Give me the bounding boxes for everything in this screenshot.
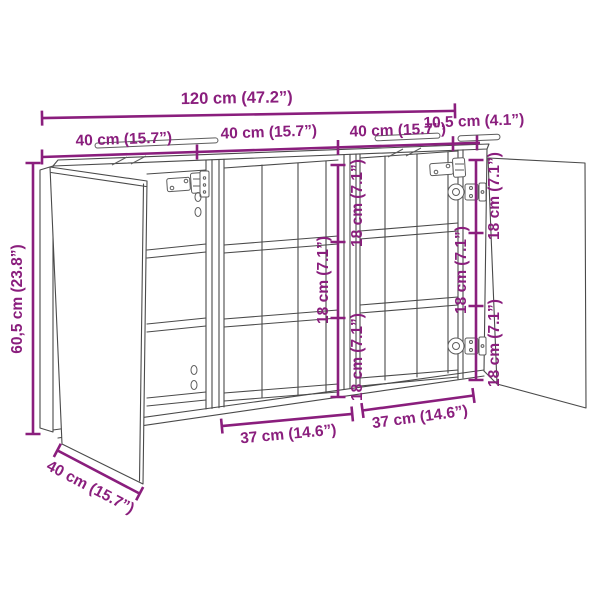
- dim-top-overhang-label: 10,5 cm (4.1”): [423, 111, 524, 132]
- mounting-bracket-left: [167, 171, 209, 197]
- middle-compartment-top: [224, 160, 338, 168]
- dim-section-left-label: 40 cm (15.7”): [75, 129, 172, 149]
- hinge-icon-top: [448, 183, 486, 201]
- dim-overall-width: 120 cm (47.2”): [42, 85, 456, 125]
- shelf-pin-holes: [191, 193, 201, 390]
- right-back-slats: [385, 152, 448, 380]
- right-compartment-shelves: [360, 223, 458, 386]
- dim-height-label: 60,5 cm (23.8”): [9, 244, 26, 353]
- diagram-canvas: 120 cm (47.2”) 40 cm (15.7”) 40 cm (15.7…: [0, 0, 600, 600]
- dim-inner-width-right: 37 cm (14.6”): [362, 388, 477, 433]
- dim-gap-middle-bottom-label: 18 cm (7.1”): [349, 313, 366, 401]
- sideboard-dimension-diagram: 120 cm (47.2”) 40 cm (15.7”) 40 cm (15.7…: [0, 0, 600, 600]
- left-door-open: [50, 167, 147, 484]
- left-side-panel: [40, 166, 53, 432]
- hinge-icon-bottom: [448, 337, 486, 355]
- dim-height: 60,5 cm (23.8”): [9, 163, 41, 434]
- dim-gap-right-bottom-label: 18 cm (7.1”): [486, 299, 503, 387]
- dim-gap-right-top-label: 18 cm (7.1”): [486, 152, 503, 240]
- dim-inner-width-middle: 37 cm (14.6”): [221, 406, 354, 448]
- dim-gap-middle-center-label: 18 cm (7.1”): [315, 236, 332, 324]
- dim-middle-shelf-gaps: 18 cm (7.1”) 18 cm (7.1”) 18 cm (7.1”): [315, 159, 366, 401]
- left-compartment-shelves: [147, 244, 206, 406]
- dim-section-middle-label: 40 cm (15.7”): [220, 122, 317, 142]
- dim-gap-middle-top-label: 18 cm (7.1”): [349, 159, 366, 247]
- dim-gap-right-center-label: 18 cm (7.1”): [453, 226, 470, 314]
- dim-overall-width-label: 120 cm (47.2”): [181, 88, 293, 108]
- dim-inner-width-middle-label: 37 cm (14.6”): [240, 422, 338, 448]
